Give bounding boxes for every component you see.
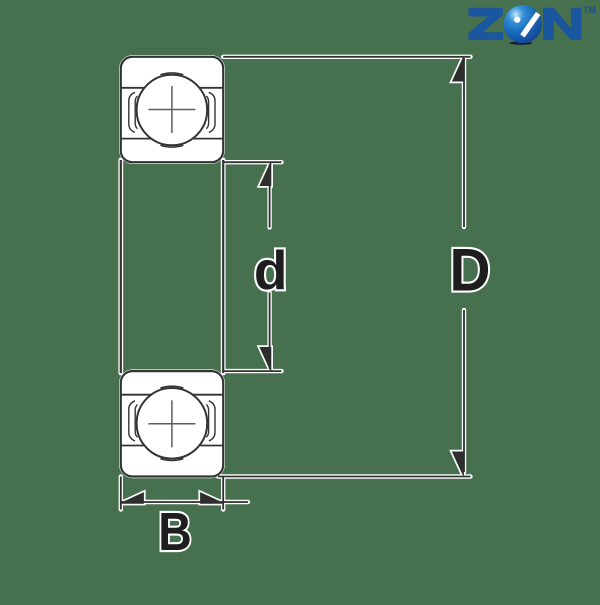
svg-text:d: d xyxy=(254,239,288,301)
svg-text:B: B xyxy=(158,502,192,562)
svg-text:D: D xyxy=(450,236,491,304)
svg-text:TM: TM xyxy=(583,5,596,15)
